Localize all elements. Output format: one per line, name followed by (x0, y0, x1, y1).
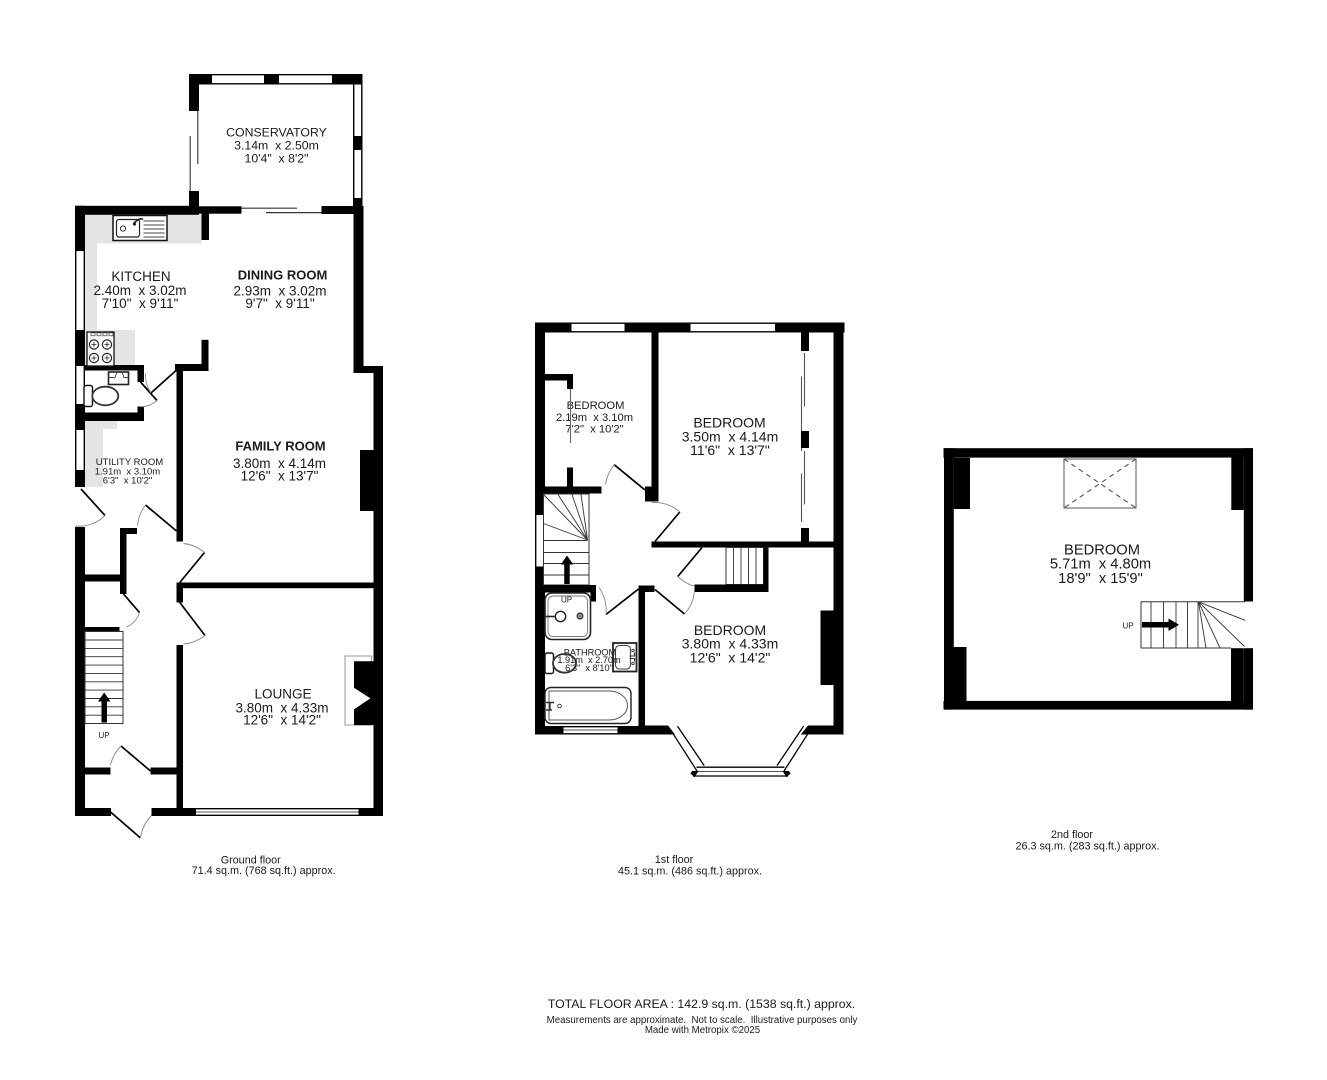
svg-text:DINING ROOM: DINING ROOM (238, 268, 328, 283)
svg-text:TOTAL FLOOR AREA : 142.9 sq.m.: TOTAL FLOOR AREA : 142.9 sq.m. (1538 sq.… (548, 997, 855, 1011)
svg-text:45.1 sq.m. (486 sq.ft.) approx: 45.1 sq.m. (486 sq.ft.) approx. (618, 866, 762, 878)
svg-text:2.19m x 3.10m: 2.19m x 3.10m (556, 412, 633, 424)
svg-text:BEDROOM: BEDROOM (567, 400, 625, 412)
svg-text:26.3 sq.m. (283 sq.ft.) approx: 26.3 sq.m. (283 sq.ft.) approx. (1015, 841, 1159, 853)
svg-text:UP: UP (1122, 622, 1133, 631)
svg-text:LOUNGE: LOUNGE (254, 687, 311, 702)
svg-text:1st floor: 1st floor (655, 854, 694, 866)
svg-text:18'9" x 15'9": 18'9" x 15'9" (1058, 571, 1143, 587)
svg-text:3.14m x 2.50m: 3.14m x 2.50m (234, 139, 319, 153)
svg-text:71.4 sq.m. (768 sq.ft.) approx: 71.4 sq.m. (768 sq.ft.) approx. (192, 865, 336, 877)
svg-text:10'4" x 8'2": 10'4" x 8'2" (244, 152, 308, 166)
svg-text:KITCHEN: KITCHEN (111, 269, 170, 284)
svg-text:FAMILY ROOM: FAMILY ROOM (235, 439, 325, 454)
svg-text:7'10" x 9'11": 7'10" x 9'11" (102, 296, 179, 311)
svg-text:12'6" x 13'7": 12'6" x 13'7" (241, 469, 319, 484)
svg-text:11'6" x 13'7": 11'6" x 13'7" (690, 442, 770, 458)
svg-text:6'3" x 8'10": 6'3" x 8'10" (565, 663, 613, 673)
svg-text:2nd floor: 2nd floor (1051, 829, 1093, 841)
svg-text:UP: UP (98, 731, 109, 740)
svg-text:6'3" x 10'2": 6'3" x 10'2" (103, 476, 152, 487)
svg-text:UP: UP (561, 596, 572, 605)
svg-text:7'2" x 10'2": 7'2" x 10'2" (565, 424, 623, 436)
svg-text:CONSERVATORY: CONSERVATORY (226, 126, 327, 140)
svg-text:12'6" x 14'2": 12'6" x 14'2" (243, 712, 321, 727)
svg-text:9'7" x 9'11": 9'7" x 9'11" (245, 296, 314, 311)
svg-text:Made with Metropix ©2025: Made with Metropix ©2025 (645, 1025, 760, 1036)
svg-text:12'6" x 14'2": 12'6" x 14'2" (690, 650, 771, 666)
